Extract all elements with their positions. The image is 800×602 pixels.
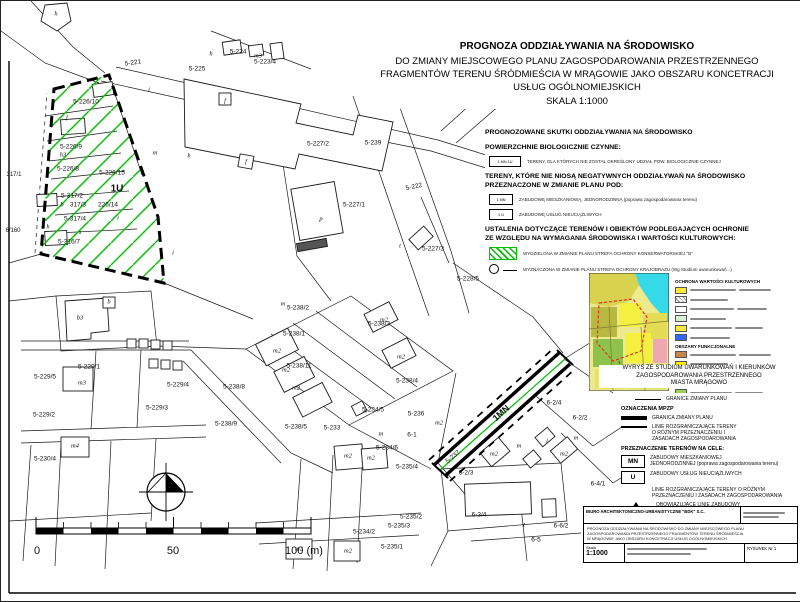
parcel-label: i [546,438,548,445]
parcel-label: m2 [490,451,498,458]
legend-item-text: ZASADACH ZAGOSPODAROWANIA [652,436,737,442]
parcel-label: m3 [78,380,86,387]
inset-caption: WYRYS ZE STUDIUM UWARUNKOWAŃ I KIERUNKÓW… [599,365,799,388]
parcel-label: 5-226/8 [57,166,79,173]
inset-legend-heading: OBSZARY FUNKCJONALNE [675,344,797,349]
parcel-label: 6/160 [5,228,20,234]
inset-caption-line: WYRYS ZE STUDIUM UWARUNKOWAŃ I KIERUNKÓW [599,365,799,373]
legend-item: 1 MN ZABUDOWĘ MIESZKANIOWĄ, JEDNORODZINN… [489,194,797,205]
parcel-label: b [60,202,63,209]
legend-item-text: WYDZIELONA W ZMIANIE PLANU STREFA OCHRON… [523,251,693,256]
parcel-label: 5-239 [365,140,382,147]
parcel-label: i [117,215,119,222]
drawing-title: PROGNOZA ODDZIAŁYWANIA NA ŚRODOWISKO DO … [359,39,795,109]
parcel-label: 6-2/2 [573,415,588,422]
parcel-label: 6-5 [531,537,540,544]
parcel-label: 226/14 [98,202,118,209]
legend-item-text: ZABUDOWY USŁUG NIEUCIĄŻLIWYCH [650,471,742,477]
parcel-label: f [224,98,226,105]
zone-code-box: 1 MN [489,194,513,205]
legend-item-text: JEDNORODZINNEJ (poprawa zagospodarowania… [650,461,778,467]
legend-swatch [675,296,687,303]
parcel-label: 5-225 [189,66,206,73]
inset-legend-item [675,325,797,332]
legend-swatch [675,287,687,294]
zone-code-box: 1 MN 1U [489,156,521,167]
drawing-number: RYSUNEK Nr 1 [745,544,797,562]
parcel-label: m [153,150,158,157]
parcel-label: 6-2/3 [459,470,474,477]
inset-legend-item [675,315,797,322]
legend-item: 1 MN 1U TERENY, DLA KTÓRYCH NIE ZOSTAŁ O… [489,156,797,167]
legend-subheading: USTALENIA DOTYCZĄCE TERENÓW I OBIEKTÓW P… [485,226,797,235]
legend-heading: OZNACZENIA MPZP [621,406,799,412]
scale-value: 1:1000 [586,550,622,557]
parcel-label: 317/1 [6,172,21,178]
parcel-label: m2 [273,348,281,355]
parcel-label: m [517,443,522,450]
parcel-label: i [172,250,174,257]
parcel-label: 5-236 [408,411,425,418]
parcel-label: t [135,341,137,347]
inset-legend-item [675,351,797,358]
legend-subheading: TERENY, KTÓRE NIE NIOSĄ NEGATYWNYCH ODDZ… [485,173,797,182]
parcel-label: m [574,435,579,442]
title-block: BIURO ARCHITEKTONICZNO-URBANISTYCZNE "BD… [583,506,798,563]
parcel-label: f [66,115,68,121]
legend-subheading: PRZEZNACZONE W ZMIANIE PLANU POD: [485,182,797,191]
parcel-label: m2 [560,451,568,458]
parcel-label: 5-316/7 [58,239,80,246]
parcel-label: i [148,87,150,94]
parcel-label: 317/3 [70,202,86,209]
title-line-1: PROGNOZA ODDZIAŁYWANIA NA ŚRODOWISKO [359,41,795,52]
parcel-label: 5-226/15 [99,170,125,177]
title-block-row: BIURO ARCHITEKTONICZNO-URBANISTYCZNE "BD… [584,507,797,524]
parcel-label: 5-235/1 [381,544,403,551]
study-inset-legend: OCHRONA WARTOŚCI KULTUROWYCH OBSZARY FUN… [675,277,797,408]
legend-item: U ZABUDOWY USŁUG NIEUCIĄŻLIWYCH [621,471,799,484]
parcel-label: 5-227/3 [422,246,444,253]
parcel-label: m2 [435,420,443,427]
legend-item-text: PRZEZNACZENIU I ZASADACH ZAGOSPODAROWANI… [652,493,799,499]
parcel-label: m2 [282,367,290,374]
legend-mpzp: GRANICE ZMIANY PLANU OZNACZENIA MPZP GRA… [621,393,799,524]
zone-label-1u: 1U [111,184,124,195]
parcel-label: 5-235/2 [400,514,422,521]
parcel-label: 5-224 [230,49,247,56]
title-line-2: DO ZMIANY MIEJSCOWEGO PLANU ZAGOSPODAROW… [359,55,795,68]
parcel-label: t [399,243,401,250]
legend-item-text: GRANICE ZMIANY PLANU [666,396,727,402]
legend-item: MN ZABUDOWY MIESZKANIOWEJ JEDNORODZINNEJ… [621,455,799,468]
legend-swatch [675,351,687,358]
parcel-label: 6-6/2 [554,523,569,530]
legend-swatch [675,306,687,313]
parcel-label: 5-222 [405,182,423,192]
inset-legend-culture-rows [675,287,797,342]
legend-item-text: WYZNACZONA W ZMIANIE PLANU STREFA OCHRON… [523,267,732,272]
scale-label: 50 [167,545,179,557]
title-line-3: FRAGMENTÓW TERENU ŚRÓDMIEŚCIA W MRĄGOWIE… [359,68,795,81]
project-title-line: W MRĄGOWIE JAKO OBSZARU KONCETRACJI USŁU… [587,536,794,541]
office-name: BIURO ARCHITEKTONICZNO-URBANISTYCZNE "BD… [584,507,741,523]
legend-swatch [675,334,687,341]
parcel-label: 5-238/11 [286,363,311,370]
legend-item: 1 U ZABUDOWĘ USŁUG NIEUCIĄŻLIWYCH [489,209,797,220]
legend-item: WYDZIELONA W ZMIANIE PLANU STREFA OCHRON… [489,247,797,260]
parcel-label: m2 [380,317,388,324]
parcel-label: m2 [367,455,375,462]
legend-heading: PRZEZNACZENIE TERENÓW NA CELE: [621,446,799,452]
parcel-label: 5-238/2 [287,305,309,312]
parcel-label: 5-229/4 [167,382,189,389]
title-line-4: USŁUG OGÓLNOMIEJSKICH [359,81,795,94]
parcel-label: 5-317/2 [61,193,83,200]
parcel-label: 5-238/8 [223,384,245,391]
legend-item-text: GRANICA ZMIANY PLANU [652,415,713,421]
parcel-label: 5-235/3 [388,523,410,530]
parcel-label: 5-234/6 [376,445,398,452]
parcel-label: m [379,431,384,438]
parcel-label: 5-238/1 [283,331,305,338]
landscape-protection-icon [489,264,517,274]
legend-item-text: TERENY, DLA KTÓRYCH NIE ZOSTAŁ OKREŚLONY… [527,159,721,164]
parcel-label: b [107,299,110,306]
parcel-label: 5-234/2 [353,529,375,536]
parcel-label: 5-238/4 [396,378,418,385]
zone-code-box: 1 U [489,209,513,220]
scale-label: 100 (m) [285,545,323,557]
parcel-label: 5-227/2 [307,141,329,148]
parcel-label: h [54,11,57,18]
legend-subheading: ZE WZGLĘDU NA WYMAGANIA ŚRODOWISKA I WAR… [485,235,797,244]
project-title: PROGNOZA ODDZIAŁYWANIA NA ŚRODOWISKO DO … [584,524,797,544]
parcel-label: 5-227/1 [343,202,365,209]
inset-caption-line: MIASTA MRĄGOWO [599,380,799,388]
conservation-zone-swatch [489,247,517,260]
parcel-label: 5-229/1 [78,364,100,371]
parcel-label: h [209,51,212,58]
office-address [741,507,797,523]
parcel-label: h [46,224,49,231]
parcel-label: 6-2/4 [547,400,562,407]
map-sheet: 5-2215-2255-224m35-223/45-226/105-226/9h… [0,0,800,602]
parcel-label: 5-229/5 [34,374,56,381]
inset-legend-item [675,287,797,294]
plan-boundary-icon [621,416,647,420]
parcel-label: 5-230/4 [34,456,56,463]
parcel-label: t [523,522,525,529]
legend-item: LINIE ROZGRANICZAJĄCE TERENY O RÓŻNYM PR… [652,487,799,499]
parcel-label: 6-4/1 [591,481,606,488]
parcel-label: 5-223/4 [254,59,276,66]
legend-swatch [675,325,687,332]
parcel-label: m2 [344,548,352,555]
parcel-label: p [319,216,322,223]
inset-legend-item [675,306,797,313]
parcel-label: m2 [344,453,352,460]
parcel-label: m2 [397,354,405,361]
parcel-label: t [160,361,162,367]
scale-cell: Skala 1:1000 [584,544,625,562]
inset-caption-line: ZAGOSPODAROWANIA PRZESTRZENNEGO [599,373,799,381]
parcel-label: 5-238/5 [285,424,307,431]
parcel-label: 5-228/5 [457,276,479,283]
author-cell [625,544,745,562]
legend-item: GRANICA ZMIANY PLANU [621,415,799,421]
legend-item: GRANICE ZMIANY PLANU [635,396,799,402]
zone-code-box: MN [621,455,645,468]
title-block-row: Skala 1:1000 RYSUNEK Nr 1 [584,544,797,562]
parcel-label: b3 [77,315,84,322]
parcel-label: h [187,153,190,160]
parcel-label: 6-1 [407,432,416,439]
parcel-label: 5-238/9 [215,421,237,428]
legend-item-text: ZABUDOWĘ USŁUG NIEUCIĄŻLIWYCH [519,212,602,217]
parcel-label: 5-221 [124,58,141,67]
parcel-label: 5-233 [324,425,341,432]
parcel-label: 5-235/4 [396,464,418,471]
legend-swatch [675,315,687,322]
parcel-label: 5-229/2 [33,412,55,419]
inset-legend-item [675,334,797,341]
legend-item-text: ZABUDOWĘ MIESZKANIOWĄ, JEDNORODZINNĄ (po… [519,197,697,202]
parcel-label: 6-3/4 [472,512,487,519]
zone-code-box: U [621,471,645,484]
parcel-label: f [245,159,247,166]
zone-label-1mn: 1MN [491,403,512,423]
parcel-label: 5-229/3 [146,405,168,412]
legend-environment: PROGNOZOWANE SKUTKI ODDZIAŁYWANIA NA ŚRO… [485,129,797,278]
legend-subheading: POWIERZCHNIE BIOLOGICZNIE CZYNNE: [485,144,797,153]
inset-legend-item [675,296,797,303]
dividing-line-icon [621,426,647,428]
legend-item: LINIE ROZGRANICZAJĄCE TERENY O RÓŻNYM PR… [621,424,799,442]
parcel-label: 5-237 [444,449,461,465]
parcel-label: m4 [71,443,79,450]
parcel-label: 5-226/9 [60,144,82,151]
parcel-label: t [365,408,367,415]
parcel-label: m2 [292,385,300,392]
parcel-label: h3 [60,152,67,159]
title-scale: SKALA 1:1000 [359,96,795,107]
parcel-label: 5-317/4 [64,216,86,223]
inset-legend-heading: OCHRONA WARTOŚCI KULTUROWYCH [675,279,797,284]
parcel-label: m [281,301,286,308]
legend-heading: PROGNOZOWANE SKUTKI ODDZIAŁYWANIA NA ŚRO… [485,129,797,138]
parcel-label: s [79,230,81,236]
scale-label: 0 [34,545,40,557]
boundary-line-icon [635,399,661,400]
parcel-label: 5-226/10 [73,99,99,106]
